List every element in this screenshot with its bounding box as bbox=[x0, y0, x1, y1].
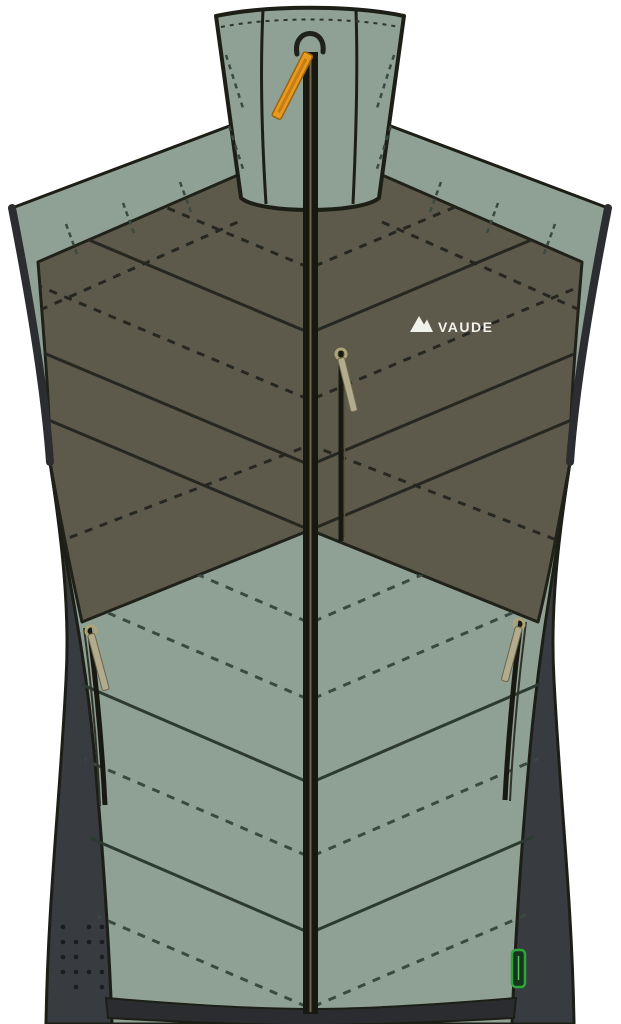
product-image-vest: VAUDE bbox=[0, 0, 621, 1024]
vaude-logo-text: VAUDE bbox=[438, 319, 493, 335]
hang-tag bbox=[512, 950, 525, 987]
vest-illustration: VAUDE bbox=[0, 0, 621, 1024]
